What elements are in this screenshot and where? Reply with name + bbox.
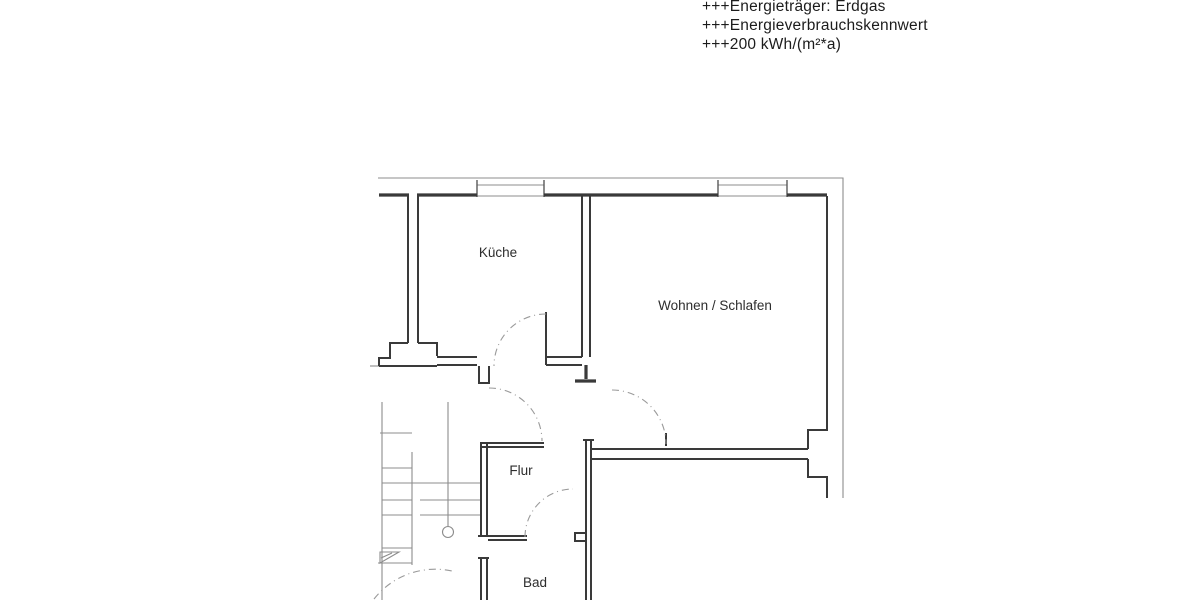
living-door-arc	[612, 390, 666, 444]
wall-living-bottom	[592, 449, 808, 459]
bath-door-arc	[525, 489, 573, 537]
wall-protrusion	[379, 343, 437, 366]
window-kitchen	[477, 180, 544, 197]
room-labels: Küche Wohnen / Schlafen Flur Bad	[479, 245, 772, 590]
wall-divider-foot	[575, 365, 596, 381]
kitchen-door-arc	[494, 314, 546, 366]
window-living	[718, 180, 787, 197]
room-label-living: Wohnen / Schlafen	[658, 298, 772, 313]
wall-bath-door-jamb	[575, 533, 585, 541]
stair-treads	[378, 433, 480, 563]
walls	[379, 195, 827, 600]
door-arcs	[374, 314, 666, 599]
wall-hall-left	[478, 442, 489, 600]
wall-bath-right	[583, 440, 594, 600]
stair-direction-arrow	[380, 552, 399, 563]
room-label-hallway: Flur	[509, 463, 533, 478]
wall-bath-top	[488, 536, 527, 540]
wall-kitchen-bottom	[379, 357, 477, 366]
room-label-kitchen: Küche	[479, 245, 517, 260]
wall-kitchen-door-jamb	[479, 366, 489, 383]
screenshot-root: +++Energieträger: Erdgas +++Energieverbr…	[0, 0, 1200, 600]
room-label-bathroom: Bad	[523, 575, 547, 590]
entrance-door-arc	[374, 569, 452, 599]
wall-hall-top	[480, 443, 544, 447]
wall-left	[408, 195, 418, 343]
wall-mid-segment	[546, 357, 582, 365]
wall-right-niche	[808, 196, 827, 498]
floor-plan: Küche Wohnen / Schlafen Flur Bad	[0, 0, 1200, 600]
vestibule-door-arc	[489, 388, 542, 441]
stair-newel-circle	[443, 527, 454, 538]
stair-stringers	[382, 402, 448, 600]
wall-divider	[582, 196, 590, 357]
staircase	[378, 402, 480, 600]
